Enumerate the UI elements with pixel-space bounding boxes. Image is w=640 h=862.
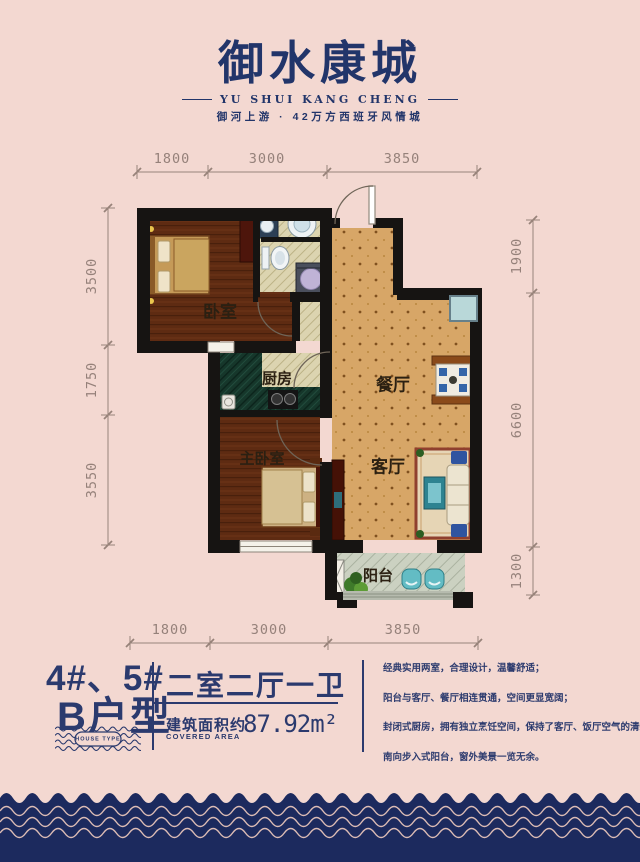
dim-right-2: 6600 xyxy=(509,402,525,439)
bedroom-label: 卧室 xyxy=(203,302,237,322)
subtitle-rule-left xyxy=(182,99,212,100)
dim-right-1: 1900 xyxy=(509,238,525,275)
feature-item: 南向步入式阳台，窗外美景一览无余。 xyxy=(383,749,633,763)
stamp-label: HOUSE TYPE xyxy=(75,737,120,743)
living-label: 客厅 xyxy=(370,457,405,477)
dim-right-3: 1300 xyxy=(509,553,525,590)
logo-tagline: 御河上游 · 42万方西班牙风情城 xyxy=(0,109,640,124)
divider-vertical-2 xyxy=(362,660,364,752)
logo-subtitle-row: YU SHUI KANG CHENG xyxy=(0,93,640,106)
dim-bottom-2: 3000 xyxy=(251,622,288,638)
dim-left-2: 1750 xyxy=(84,362,100,399)
living-room-furniture xyxy=(416,449,470,538)
house-type-stamp: HOUSE TYPE xyxy=(55,724,141,754)
logo-title: 御水康城 xyxy=(0,38,640,89)
area-label-en: COVERED AREA xyxy=(166,732,241,741)
dim-bottom-1: 1800 xyxy=(152,622,189,638)
balcony-label: 阳台 xyxy=(363,567,393,585)
logo-block: 御水康城 YU SHUI KANG CHENG 御河上游 · 42万方西班牙风情… xyxy=(0,38,640,124)
divider-vertical-1 xyxy=(152,662,154,750)
dim-bottom-3: 3850 xyxy=(385,622,422,638)
poster-page: 御水康城 YU SHUI KANG CHENG 御河上游 · 42万方西班牙风情… xyxy=(0,0,640,862)
area-value: 87.92m² xyxy=(243,710,337,738)
subtitle-rule-right xyxy=(428,99,458,100)
dim-top-1: 1800 xyxy=(154,151,191,167)
dim-top-3: 3850 xyxy=(384,151,421,167)
floor-plan: 卧室 厨房 主卧室 餐厅 客厅 阳台 xyxy=(0,150,640,655)
feature-item: 封闭式厨房，拥有独立烹饪空间，保持了客厅、饭厅空气的清新； xyxy=(383,719,633,733)
feature-list: 经典实用两室，合理设计，温馨舒适； 阳台与客厅、餐厅相连贯通，空间更显宽阔； 封… xyxy=(383,660,633,778)
info-section: 4#、5# B户型 HOUSE TYPE 二室二厅一卫 建筑面积约 COVERE… xyxy=(0,648,640,778)
master-bedroom-label: 主卧室 xyxy=(239,450,284,468)
kitchen-label: 厨房 xyxy=(262,370,292,388)
feature-item: 经典实用两室，合理设计，温馨舒适； xyxy=(383,660,633,674)
feature-item: 阳台与客厅、餐厅相连贯通，空间更显宽阔； xyxy=(383,690,633,704)
dim-left-3: 3550 xyxy=(84,462,100,499)
dim-left-1: 3500 xyxy=(84,258,100,295)
wave-footer xyxy=(0,788,640,862)
divider-horizontal xyxy=(152,702,338,704)
dining-table xyxy=(432,356,474,404)
dining-label: 餐厅 xyxy=(376,375,410,395)
layout-title: 二室二厅一卫 xyxy=(166,664,346,704)
dim-top-2: 3000 xyxy=(249,151,286,167)
logo-subtitle: YU SHUI KANG CHENG xyxy=(220,93,420,106)
